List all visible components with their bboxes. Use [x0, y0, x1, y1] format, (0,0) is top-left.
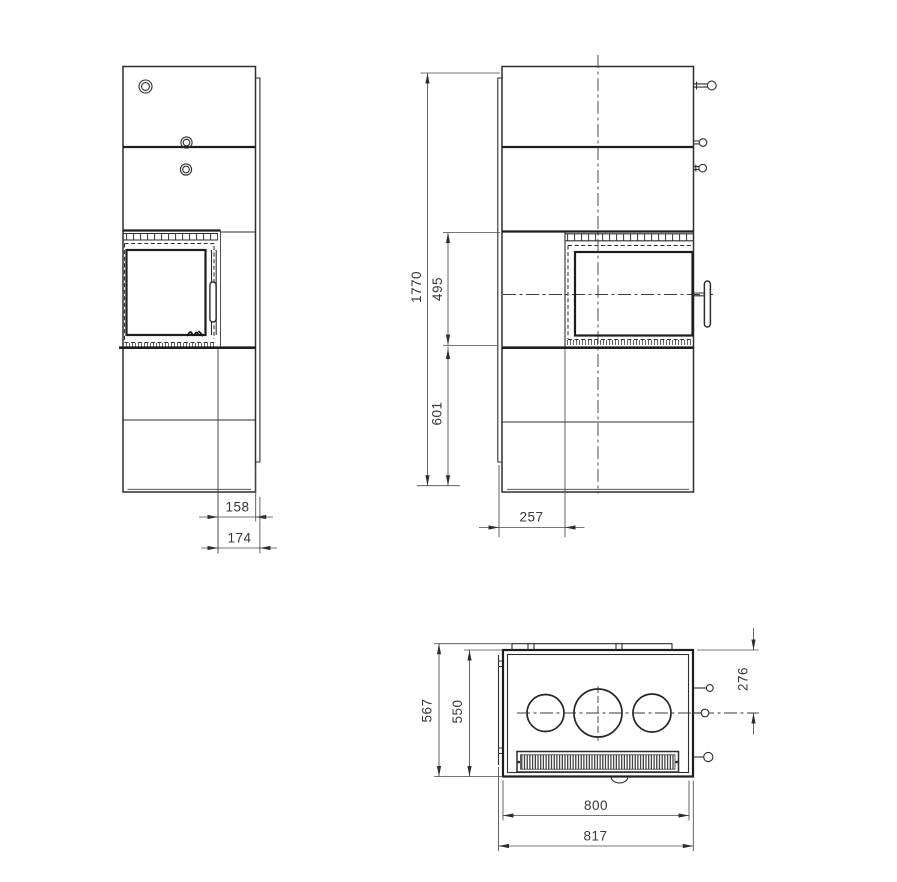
front-door: [502, 232, 710, 348]
dimension-257: 257: [479, 349, 585, 537]
side-door-glass: [127, 250, 206, 335]
dimension-label-1770: 1770: [409, 271, 424, 303]
top-knob-1-icon: [706, 685, 713, 692]
side-door-handle: [210, 282, 216, 322]
side-view: 158 174: [119, 67, 277, 554]
dimension-800: 800: [503, 781, 689, 821]
dimension-label-800: 800: [584, 798, 608, 813]
dimension-label-817: 817: [583, 829, 607, 844]
side-body-outline: [123, 67, 256, 493]
drawing-svg: 158 174: [0, 0, 897, 882]
top-grille: [517, 752, 679, 773]
knob-3-profile-icon: [699, 164, 707, 172]
side-door: [119, 231, 256, 348]
top-control-knobs-profile: [693, 685, 713, 762]
stove-dimension-drawing: 158 174: [0, 0, 897, 882]
dimension-label-276: 276: [736, 667, 751, 691]
grille-screw-right: [675, 761, 678, 764]
front-door-vent-band: [565, 234, 693, 241]
knob-3-icon: [180, 164, 191, 175]
dimension-550: 550: [450, 650, 503, 777]
dimension-601: 601: [430, 347, 451, 486]
dimension-label-567: 567: [420, 698, 435, 722]
side-door-vent-band: [123, 234, 218, 241]
top-knob-2-icon: [701, 709, 709, 717]
top-hotplates: [517, 686, 759, 741]
knob-1-profile-icon: [707, 81, 716, 90]
dimension-label-257: 257: [519, 510, 543, 525]
side-control-knobs: [139, 80, 192, 175]
dimension-label-495: 495: [430, 277, 445, 301]
top-knob-3-icon: [704, 752, 713, 761]
front-door-gasket: [568, 246, 691, 340]
dimension-label-550: 550: [450, 699, 465, 723]
top-grille-slats: [521, 755, 676, 769]
front-door-handle-profile: [704, 281, 710, 327]
top-view: 567 550 276 800 817: [420, 628, 759, 851]
dimension-1770: 1770: [409, 73, 500, 486]
knob-1-icon: [139, 80, 152, 93]
grille-screw-left: [518, 761, 521, 764]
side-door-gasket: [125, 244, 217, 343]
dimension-label-601: 601: [430, 401, 445, 425]
dimension-495: 495: [430, 233, 500, 346]
front-control-knobs-profile: [694, 81, 717, 172]
front-door-glass: [575, 252, 693, 336]
dimension-276: 276: [697, 628, 759, 735]
dimension-158: 158: [199, 465, 273, 522]
front-door-sill-band: [565, 340, 693, 345]
dimension-label-158: 158: [225, 500, 249, 515]
knob-2-profile-icon: [699, 139, 707, 147]
dimension-label-174: 174: [227, 531, 251, 546]
front-view: 1770 495 601 257: [409, 55, 716, 537]
